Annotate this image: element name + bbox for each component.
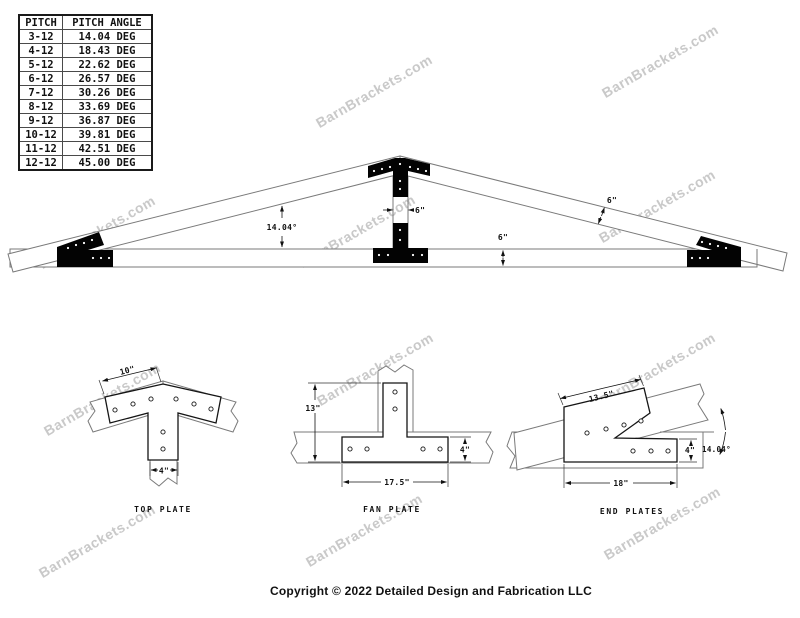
pitch-cell: 8-12 xyxy=(19,100,63,114)
fan-plate-label: FAN PLATE xyxy=(363,505,421,514)
table-row: 11-1242.51 DEG xyxy=(19,142,152,156)
pitch-cell: 10-12 xyxy=(19,128,63,142)
top-plate-arm-dimension: 10" xyxy=(119,364,136,377)
angle-cell: 30.26 DEG xyxy=(63,86,153,100)
pitch-cell: 6-12 xyxy=(19,72,63,86)
table-row: 7-1230.26 DEG xyxy=(19,86,152,100)
fan-plate-detail: 13" 4" 17.5" FAN PLATE xyxy=(291,365,493,514)
truss-angle-dimension: 14.04° xyxy=(267,223,298,232)
table-row: 4-1218.43 DEG xyxy=(19,44,152,58)
end-plates-base-height-dimension: 4" xyxy=(685,446,695,455)
end-plates-label: END PLATES xyxy=(600,507,664,516)
angle-cell: 39.81 DEG xyxy=(63,128,153,142)
angle-cell: 36.87 DEG xyxy=(63,114,153,128)
table-row: 12-1245.00 DEG xyxy=(19,156,152,171)
angle-cell: 33.69 DEG xyxy=(63,100,153,114)
pitch-cell: 7-12 xyxy=(19,86,63,100)
pitch-cell: 4-12 xyxy=(19,44,63,58)
top-plate-detail: 10" 4" TOP PLATE xyxy=(88,364,238,514)
pitch-cell: 5-12 xyxy=(19,58,63,72)
table-row: 6-1226.57 DEG xyxy=(19,72,152,86)
table-row: 9-1236.87 DEG xyxy=(19,114,152,128)
table-header-row: PITCH PITCH ANGLE xyxy=(19,15,152,30)
angle-cell: 42.51 DEG xyxy=(63,142,153,156)
angle-cell: 45.00 DEG xyxy=(63,156,153,171)
pitch-cell: 11-12 xyxy=(19,142,63,156)
truss-elevation: 14.04° 6" 6" 6" xyxy=(8,156,787,272)
fan-plate-outline xyxy=(342,383,448,462)
pitch-cell: 9-12 xyxy=(19,114,63,128)
chord-depth-dimension: 6" xyxy=(498,233,508,242)
pitch-cell: 3-12 xyxy=(19,30,63,44)
end-plates-width-dimension: 18" xyxy=(613,479,628,488)
end-plates-angle-dimension: 14.04° xyxy=(702,445,731,454)
table-row: 5-1222.62 DEG xyxy=(19,58,152,72)
table-row: 8-1233.69 DEG xyxy=(19,100,152,114)
angle-cell: 26.57 DEG xyxy=(63,72,153,86)
end-plates-detail: 13.5" 4" 18" 14.04° END PLATES xyxy=(507,375,731,516)
top-plate-leg-dimension: 4" xyxy=(159,467,169,476)
fan-plate-base-height-dimension: 4" xyxy=(460,446,470,455)
copyright-notice: Copyright © 2022 Detailed Design and Fab… xyxy=(131,584,731,598)
table-row: 3-1214.04 DEG xyxy=(19,30,152,44)
angle-cell: 22.62 DEG xyxy=(63,58,153,72)
table-row: 10-1239.81 DEG xyxy=(19,128,152,142)
pitch-angle-column-header: PITCH ANGLE xyxy=(63,15,153,30)
fan-plate-width-dimension: 17.5" xyxy=(384,478,410,487)
pitch-angle-table: PITCH PITCH ANGLE 3-1214.04 DEG 4-1218.4… xyxy=(18,14,153,171)
pitch-column-header: PITCH xyxy=(19,15,63,30)
angle-cell: 18.43 DEG xyxy=(63,44,153,58)
kingpost-width-dimension: 6" xyxy=(415,206,425,215)
fan-plate-height-dimension: 13" xyxy=(305,404,320,413)
fan-plate-bracket xyxy=(373,223,428,263)
top-plate-label: TOP PLATE xyxy=(134,505,192,514)
drawing-page: BarnBrackets.com BarnBrackets.com BarnBr… xyxy=(0,0,800,618)
pitch-cell: 12-12 xyxy=(19,156,63,171)
angle-cell: 14.04 DEG xyxy=(63,30,153,44)
rafter-depth-dimension: 6" xyxy=(607,196,617,205)
